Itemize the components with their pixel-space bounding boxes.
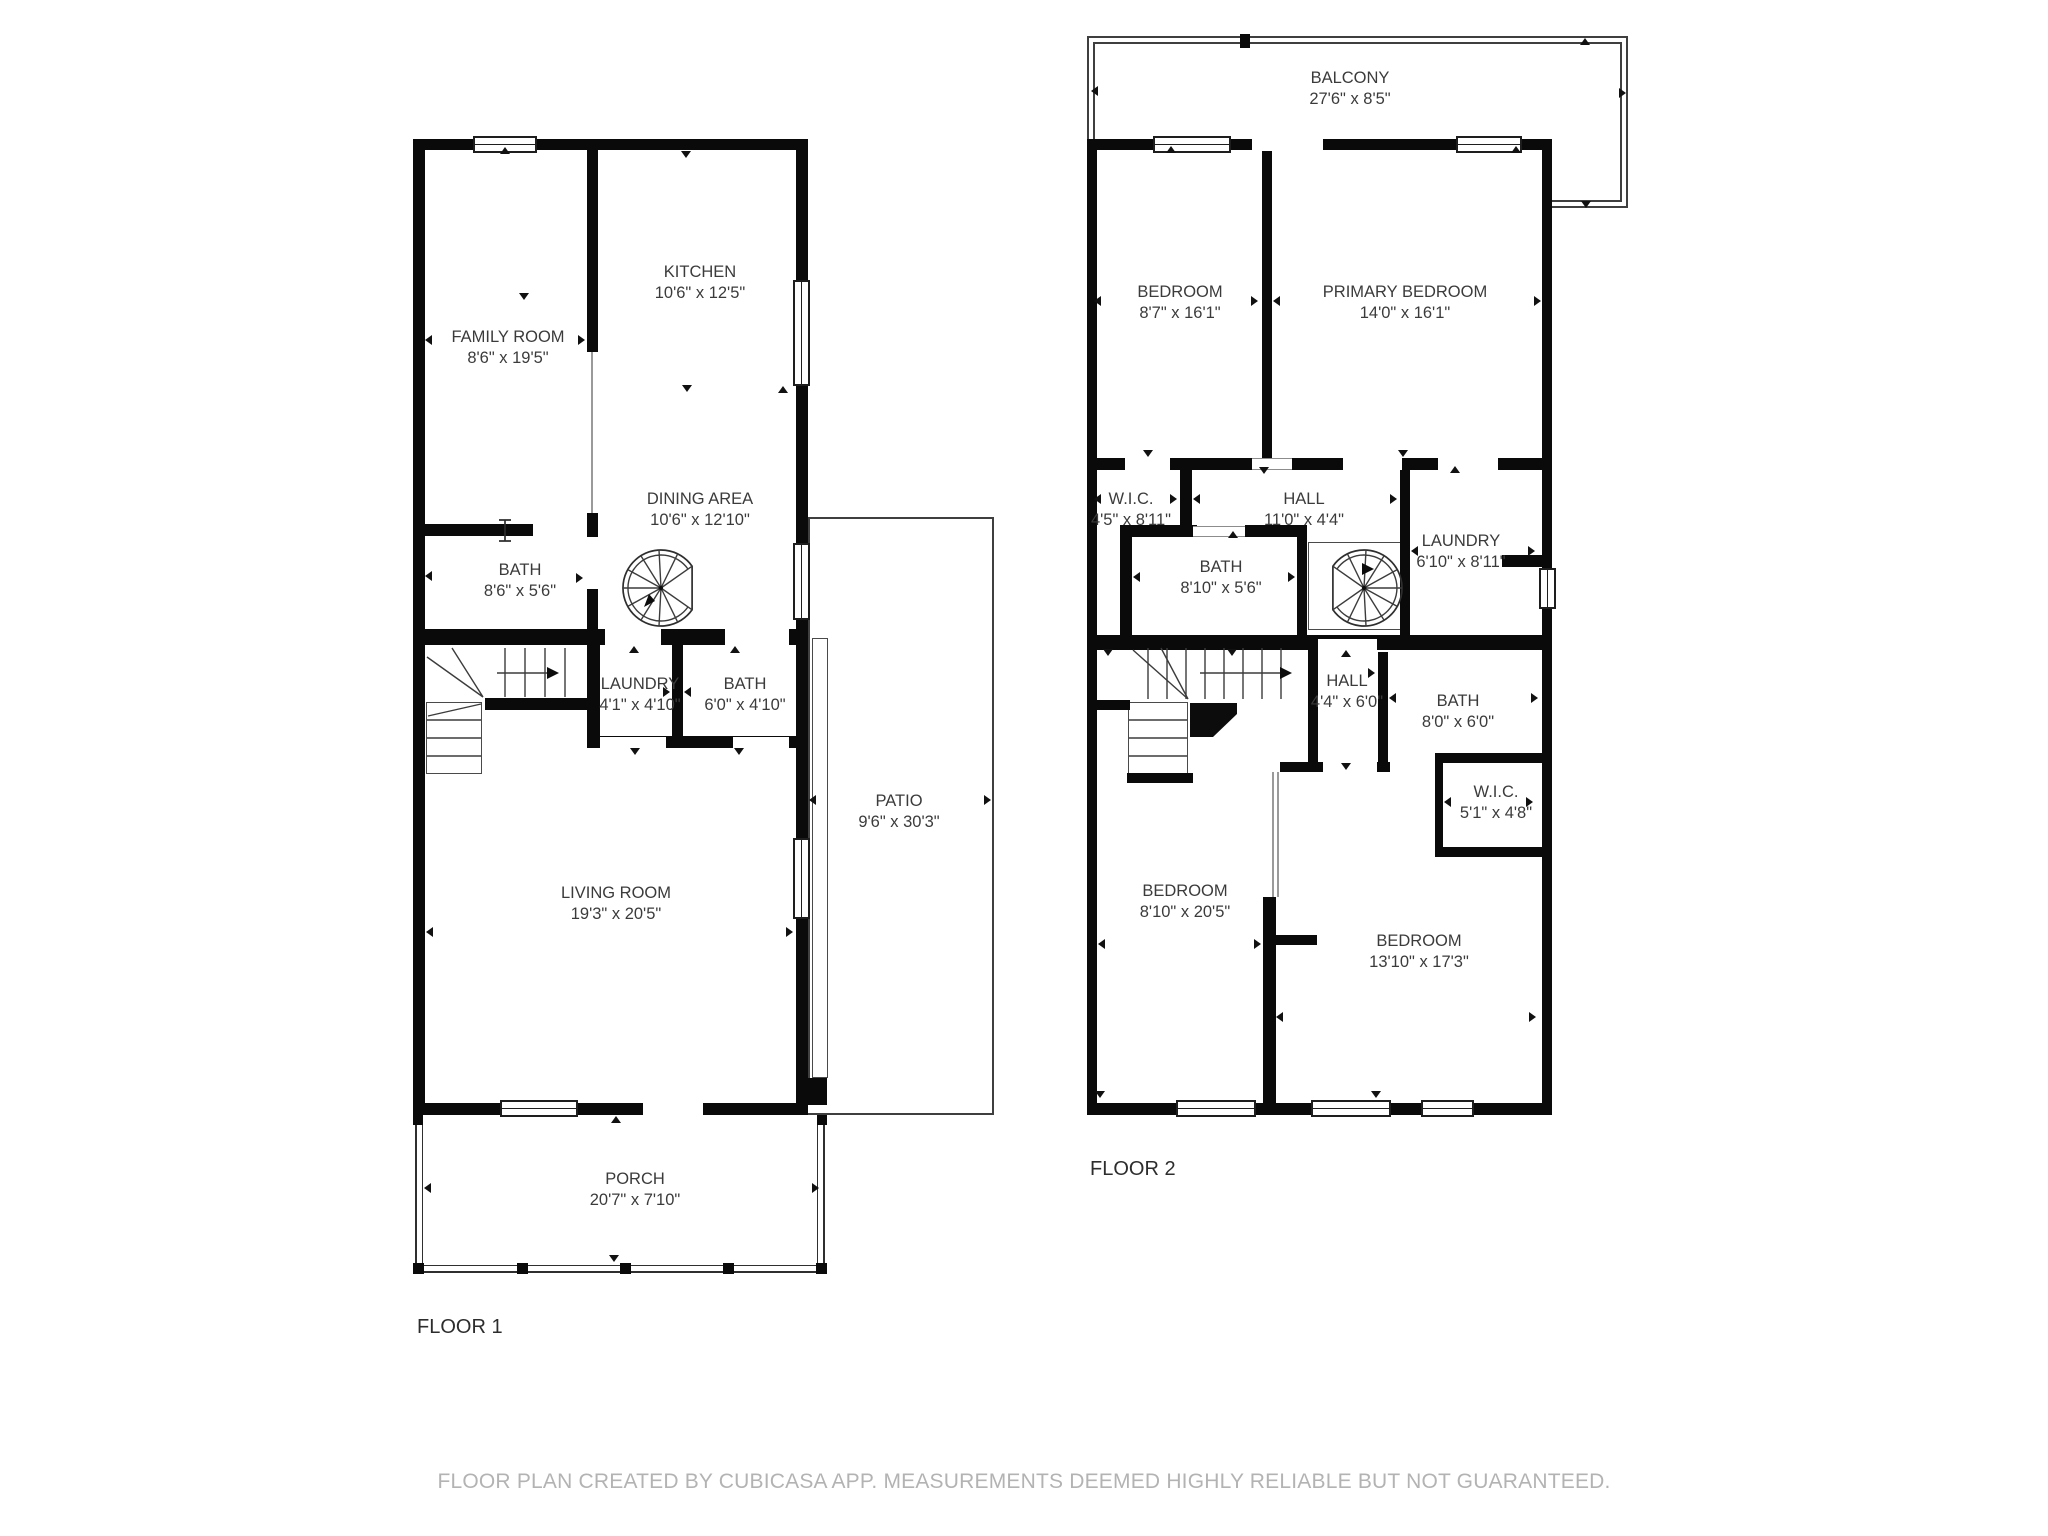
room-label-bedroom-f2: BEDROOM13'10" x 17'3" xyxy=(1299,931,1539,973)
room-label-primary-bedroom-f2: PRIMARY BEDROOM14'0" x 16'1" xyxy=(1285,282,1525,324)
room-label-hall-f2: HALL11'0" x 4'4" xyxy=(1184,489,1424,531)
room-dimensions: 6'10" x 8'11" xyxy=(1341,552,1581,573)
room-name: BATH xyxy=(625,674,865,695)
room-dimensions: 8'7" x 16'1" xyxy=(1060,303,1300,324)
spiral-stair-f1-center xyxy=(659,586,663,590)
room-dimensions: 8'6" x 5'6" xyxy=(400,581,640,602)
room-name: BEDROOM xyxy=(1065,881,1305,902)
room-dimensions: 8'0" x 6'0" xyxy=(1338,712,1578,733)
room-label-living-room-f1: LIVING ROOM19'3" x 20'5" xyxy=(496,883,736,925)
room-label-bedroom-f2: BEDROOM8'10" x 20'5" xyxy=(1065,881,1305,923)
room-label-w-i-c--f2: W.I.C.5'1" x 4'8" xyxy=(1376,782,1616,824)
stairs-f1-lower-treads xyxy=(427,720,481,756)
room-label-patio-f1: PATIO9'6" x 30'3" xyxy=(779,791,1019,833)
room-name: BATH xyxy=(1338,691,1578,712)
room-label-bath-f1: BATH8'6" x 5'6" xyxy=(400,560,640,602)
room-label-bath-f2: BATH8'0" x 6'0" xyxy=(1338,691,1578,733)
room-name: W.I.C. xyxy=(1376,782,1616,803)
room-name: BATH xyxy=(400,560,640,581)
room-dimensions: 11'0" x 4'4" xyxy=(1184,510,1424,531)
room-label-dining-area-f1: DINING AREA10'6" x 12'10" xyxy=(580,489,820,531)
room-dimensions: 6'0" x 4'10" xyxy=(625,695,865,716)
stairs-f1-winder xyxy=(427,648,483,716)
room-dimensions: 8'10" x 5'6" xyxy=(1101,578,1341,599)
floor-plan-canvas: FLOOR 1 FLOOR 2 FLOOR PLAN CREATED BY CU… xyxy=(0,0,2048,1536)
room-name: LIVING ROOM xyxy=(496,883,736,904)
room-dimensions: 9'6" x 30'3" xyxy=(779,812,1019,833)
room-label-bath-f2: BATH8'10" x 5'6" xyxy=(1101,557,1341,599)
room-dimensions: 8'6" x 19'5" xyxy=(388,348,628,369)
room-name: DINING AREA xyxy=(580,489,820,510)
room-label-bath-f1: BATH6'0" x 4'10" xyxy=(625,674,865,716)
room-name: LAUNDRY xyxy=(1341,531,1581,552)
room-dimensions: 27'6" x 8'5" xyxy=(1230,89,1470,110)
spiral-stair-f2-center xyxy=(1362,586,1366,590)
door-leaf-glyph xyxy=(499,520,511,541)
room-name: HALL xyxy=(1227,671,1467,692)
room-label-balcony-f2: BALCONY27'6" x 8'5" xyxy=(1230,68,1470,110)
stairs-overlay xyxy=(0,0,2048,1536)
room-name: HALL xyxy=(1184,489,1424,510)
room-name: FAMILY ROOM xyxy=(388,327,628,348)
room-name: PATIO xyxy=(779,791,1019,812)
room-dimensions: 5'1" x 4'8" xyxy=(1376,803,1616,824)
room-name: PORCH xyxy=(515,1169,755,1190)
room-name: BATH xyxy=(1101,557,1341,578)
room-name: BEDROOM xyxy=(1299,931,1539,952)
room-name: PRIMARY BEDROOM xyxy=(1285,282,1525,303)
room-label-bedroom-f2: BEDROOM8'7" x 16'1" xyxy=(1060,282,1300,324)
stairs-f2-winder xyxy=(1133,648,1188,699)
room-name: KITCHEN xyxy=(580,262,820,283)
room-name: BALCONY xyxy=(1230,68,1470,89)
stairs-f2-lower-treads xyxy=(1129,720,1187,756)
room-dimensions: 10'6" x 12'10" xyxy=(580,510,820,531)
room-label-family-room-f1: FAMILY ROOM8'6" x 19'5" xyxy=(388,327,628,369)
room-dimensions: 10'6" x 12'5" xyxy=(580,283,820,304)
room-dimensions: 8'10" x 20'5" xyxy=(1065,902,1305,923)
room-label-kitchen-f1: KITCHEN10'6" x 12'5" xyxy=(580,262,820,304)
room-dimensions: 19'3" x 20'5" xyxy=(496,904,736,925)
room-label-porch-f1: PORCH20'7" x 7'10" xyxy=(515,1169,755,1211)
room-dimensions: 14'0" x 16'1" xyxy=(1285,303,1525,324)
room-label-laundry-f2: LAUNDRY6'10" x 8'11" xyxy=(1341,531,1581,573)
room-dimensions: 13'10" x 17'3" xyxy=(1299,952,1539,973)
room-dimensions: 20'7" x 7'10" xyxy=(515,1190,755,1211)
room-name: BEDROOM xyxy=(1060,282,1300,303)
